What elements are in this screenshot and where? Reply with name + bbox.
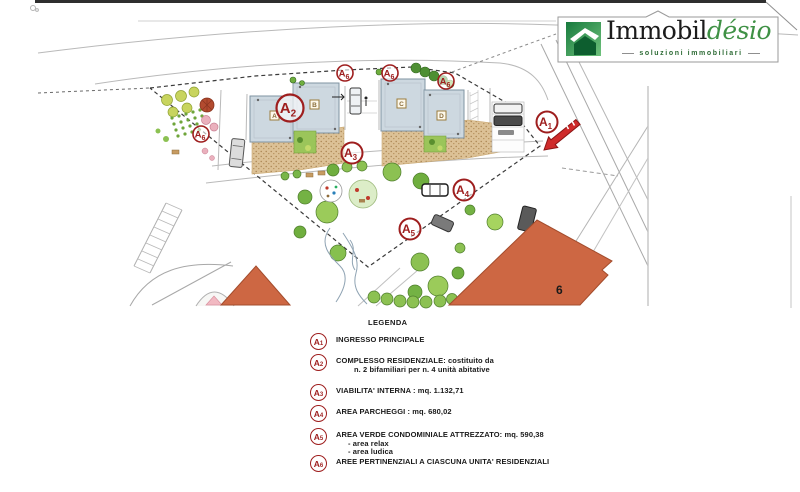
tagline-dash-left — [622, 53, 634, 54]
legend-text: n. 2 bifamiliari per n. 4 unità abitativ… — [354, 366, 494, 375]
car-icon-a4 — [422, 184, 448, 196]
house-icon — [566, 22, 601, 56]
logo-tagline-row: soluzioni immobiliari — [608, 50, 774, 57]
marker-a3: A3 — [342, 143, 363, 164]
legend-title: LEGENDA — [368, 318, 407, 327]
garden-left — [156, 87, 219, 161]
marker-a6-4: A6 — [193, 126, 209, 142]
legend-text: INGRESSO PRINCIPALE — [336, 336, 424, 345]
legend-item-a5: A5 AREA VERDE CONDOMINIALE ATTREZZATO: m… — [310, 428, 544, 457]
building-a-label: A — [272, 113, 277, 120]
brand-name-green: désio — [707, 16, 771, 45]
parking-stalls-east — [492, 102, 524, 152]
marker-a6-1: A6 — [337, 65, 353, 81]
building-d-label: D — [439, 113, 444, 120]
legend-text: AREA PARCHEGGI : mq. 680,02 — [336, 408, 452, 417]
legend-text: AREE PERTINENZIALI A CIASCUNA UNITA' RES… — [336, 458, 549, 467]
red-tree-icon — [200, 98, 214, 112]
legend-item-a2: A2 COMPLESSO RESIDENZIALE: costituito da… — [310, 354, 494, 374]
legend-marker-a6: A6 — [310, 455, 327, 472]
building-c-label: C — [399, 101, 404, 108]
listing-image: { "logo": { "brand_black": "Immobil", "b… — [0, 0, 800, 492]
logo-tagline: soluzioni immobiliari — [639, 50, 742, 57]
legend-marker-a3: A3 — [310, 384, 327, 401]
marker-a1: A1 — [537, 112, 558, 133]
play-area-icon — [320, 180, 342, 202]
legend-item-a4: A4 AREA PARCHEGGI : mq. 680,02 — [310, 405, 452, 422]
relax-area-icon — [349, 180, 377, 208]
car-icon-west — [229, 138, 245, 167]
stream-feature — [325, 228, 367, 304]
marker-a4: A4 — [454, 180, 475, 201]
marker-a6-2: A6 — [382, 65, 398, 81]
legend-item-a6: A6 AREE PERTINENZIALI A CIASCUNA UNITA' … — [310, 455, 549, 472]
legend-marker-a2: A2 — [310, 354, 327, 371]
building-six-label: 6 — [556, 283, 563, 297]
legend-item-a1: A1 INGRESSO PRINCIPALE — [310, 333, 424, 350]
car-icon-angled — [431, 214, 455, 233]
logo-wordmark: Immobildésio — [606, 16, 771, 45]
legend-marker-a4: A4 — [310, 405, 327, 422]
marker-a5: A5 — [400, 219, 421, 240]
marker-a2: A2 — [277, 95, 304, 122]
tagline-dash-right — [748, 53, 760, 54]
legend-item-a3: A3 VIABILITA' INTERNA : mq. 1.132,71 — [310, 384, 464, 401]
legend-marker-a1: A1 — [310, 333, 327, 350]
marker-a6-3: A6 — [438, 73, 454, 89]
brand-name-black: Immobil — [606, 16, 707, 45]
legend-marker-a5: A5 — [310, 428, 327, 445]
agency-logo: Immobildésio soluzioni immobiliari — [556, 9, 780, 65]
legend-text: VIABILITA' INTERNA : mq. 1.132,71 — [336, 387, 464, 396]
building-b-label: B — [312, 102, 317, 109]
